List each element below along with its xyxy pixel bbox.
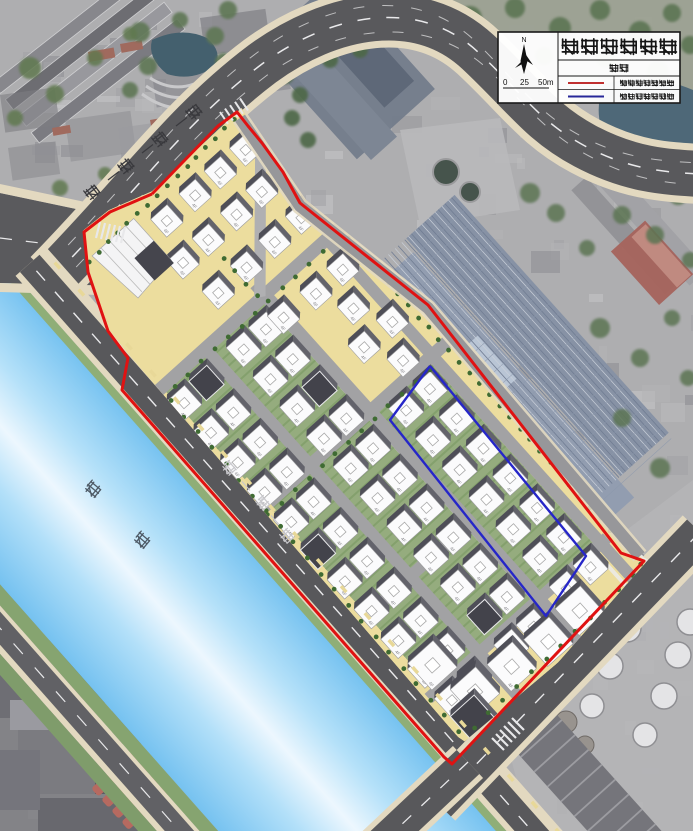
svg-text:N: N xyxy=(521,37,526,44)
svg-text:25: 25 xyxy=(520,78,529,87)
svg-text:50m: 50m xyxy=(538,78,554,87)
svg-text:0: 0 xyxy=(503,78,508,87)
